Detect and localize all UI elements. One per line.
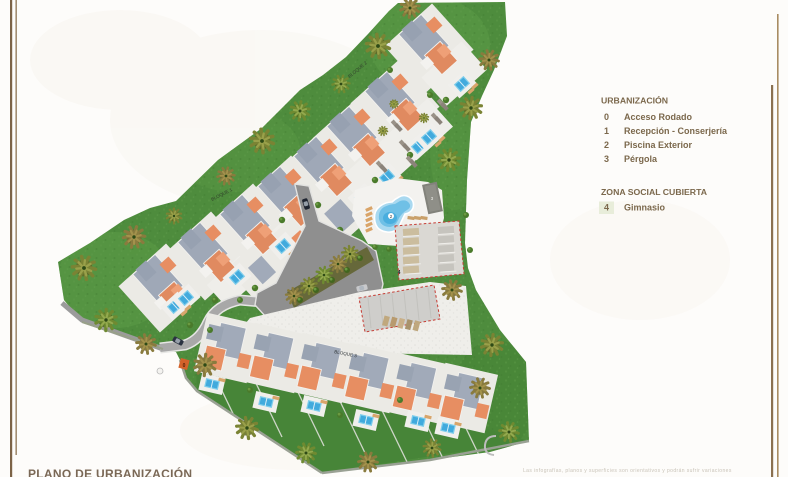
svg-text:URBANIZACIÓN: URBANIZACIÓN [601, 95, 668, 106]
svg-text:Gimnasio: Gimnasio [624, 203, 666, 213]
svg-text:PLANO DE URBANIZACIÓN: PLANO DE URBANIZACIÓN [28, 466, 192, 477]
svg-text:Las infografías, planos y supe: Las infografías, planos y superficies so… [523, 468, 732, 474]
svg-text:1: 1 [604, 126, 609, 136]
svg-text:2: 2 [604, 140, 609, 150]
svg-text:Pérgola: Pérgola [624, 154, 658, 164]
svg-text:Acceso Rodado: Acceso Rodado [624, 112, 693, 122]
svg-text:0: 0 [604, 112, 609, 122]
svg-text:Piscina Exterior: Piscina Exterior [624, 140, 693, 150]
svg-text:ZONA SOCIAL CUBIERTA: ZONA SOCIAL CUBIERTA [601, 187, 708, 197]
svg-text:4: 4 [398, 270, 401, 276]
svg-text:Recepción - Conserjería: Recepción - Conserjería [624, 126, 728, 136]
svg-text:3: 3 [604, 154, 609, 164]
svg-text:0: 0 [183, 363, 186, 369]
svg-text:4: 4 [604, 203, 609, 213]
